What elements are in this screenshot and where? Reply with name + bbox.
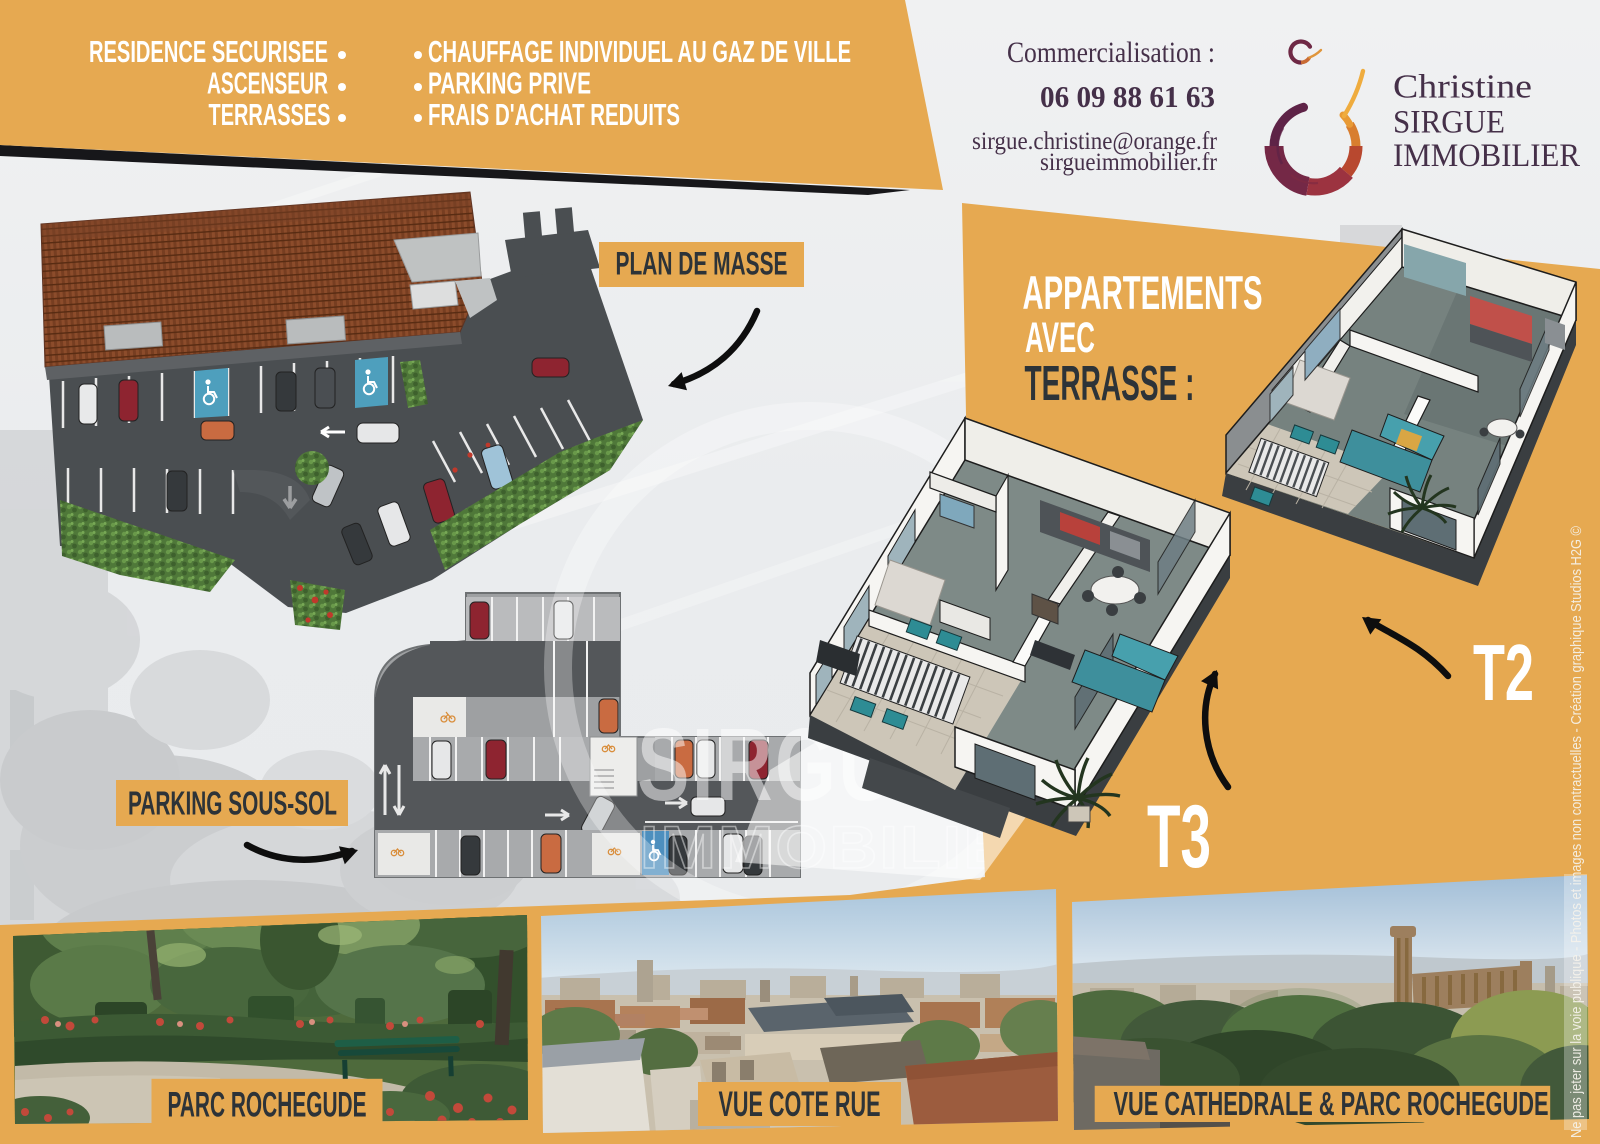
- svg-text:Commercialisation :: Commercialisation :: [1007, 36, 1215, 69]
- svg-text:SIRGUE: SIRGUE: [1393, 105, 1505, 141]
- svg-text:06 09 88 61 63: 06 09 88 61 63: [1040, 79, 1215, 114]
- svg-text:CHAUFFAGE INDIVIDUEL AU GAZ DE: CHAUFFAGE INDIVIDUEL AU GAZ DE VILLE: [428, 34, 851, 69]
- svg-text:VUE CATHEDRALE & PARC ROCHEGUD: VUE CATHEDRALE & PARC ROCHEGUDE: [1114, 1085, 1549, 1122]
- svg-text:TERRASSES: TERRASSES: [209, 97, 331, 132]
- svg-text:IMMOBILIER: IMMOBILIER: [1393, 138, 1580, 174]
- svg-text:sirgueimmobilier.fr: sirgueimmobilier.fr: [1040, 149, 1218, 176]
- svg-text:ASCENSEUR: ASCENSEUR: [207, 66, 328, 101]
- svg-text:TERRASSE :: TERRASSE :: [1025, 357, 1195, 411]
- svg-text:PLAN DE MASSE: PLAN DE MASSE: [616, 246, 788, 282]
- svg-text:VUE COTE RUE: VUE COTE RUE: [719, 1085, 881, 1124]
- svg-text:PARKING PRIVE: PARKING PRIVE: [428, 66, 591, 101]
- svg-text:RESIDENCE SECURISEE: RESIDENCE SECURISEE: [89, 34, 328, 69]
- svg-text:FRAIS D'ACHAT REDUITS: FRAIS D'ACHAT REDUITS: [428, 97, 680, 132]
- svg-text:AVEC: AVEC: [1025, 314, 1095, 362]
- svg-text:Christine: Christine: [1393, 69, 1532, 106]
- svg-text:PARC ROCHEGUDE: PARC ROCHEGUDE: [168, 1086, 367, 1125]
- svg-text:T3: T3: [1147, 786, 1211, 886]
- svg-text:T2: T2: [1473, 628, 1534, 717]
- svg-text:APPARTEMENTS: APPARTEMENTS: [1023, 266, 1263, 319]
- svg-text:PARKING SOUS-SOL: PARKING SOUS-SOL: [128, 785, 337, 822]
- svg-text:Ne pas jeter sur la voie publi: Ne pas jeter sur la voie publique - Phot…: [1569, 526, 1585, 1138]
